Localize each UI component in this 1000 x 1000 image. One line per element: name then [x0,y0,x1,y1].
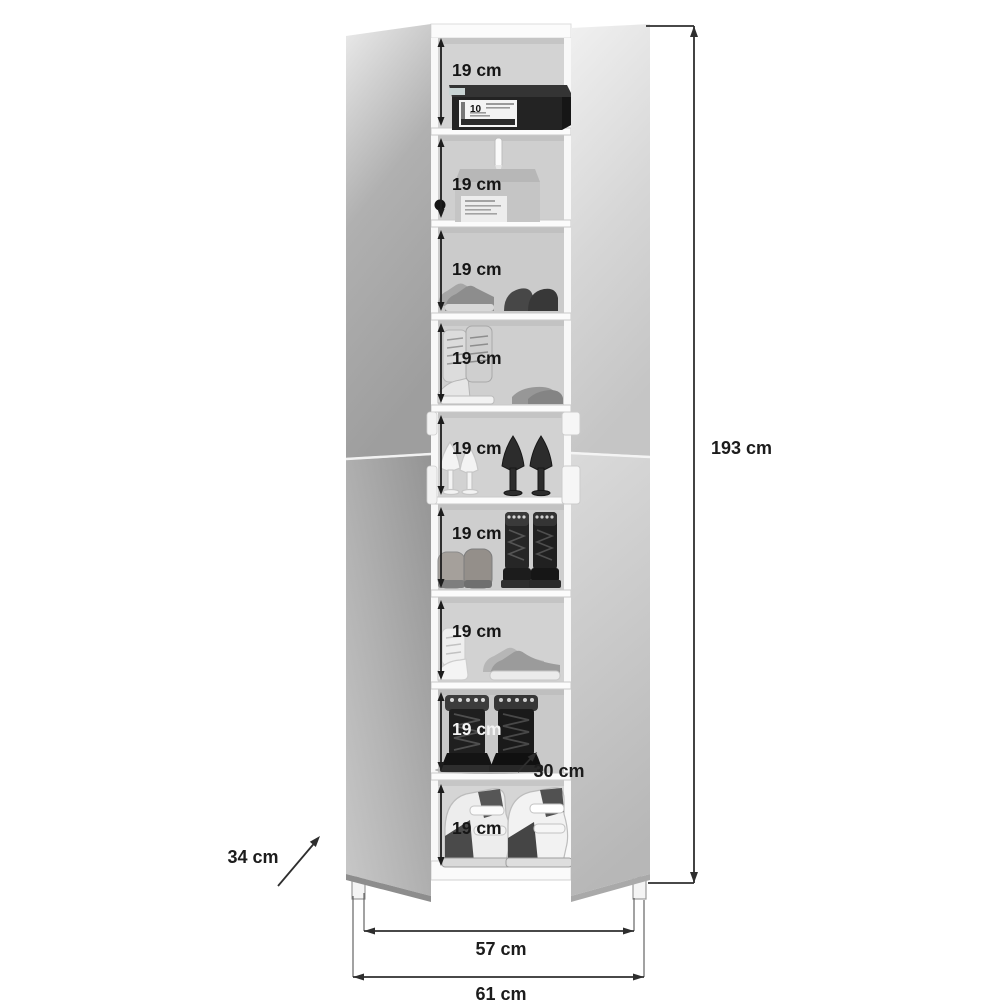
shelf3-label: 19 cm [452,259,502,279]
left-door-upper-panel [346,24,431,458]
side-depth-label: 34 cm [227,847,278,867]
left-door-handle-upper [427,412,437,435]
total-height-dimension: 193 cm [646,26,772,883]
side-depth-dimension: 34 cm [227,836,320,886]
left-door-lower-panel [346,455,431,896]
shelf4-label: 19 cm [452,348,502,368]
shelf-depth-label: 30 cm [533,761,584,781]
top-board [431,24,571,38]
right-door-handle-lower [562,466,580,504]
door-pin [435,200,446,211]
right-door-lower-panel [571,454,650,896]
product-dimension-diagram: 10 [0,0,1000,1000]
shelf9-label: 19 cm [452,818,502,838]
left-mirror-door [346,24,437,902]
outer-width-label: 61 cm [475,984,526,1000]
inner-width-dimension: 57 cm [364,893,634,959]
right-door-upper-panel [571,24,650,456]
shelf2-label: 19 cm [452,174,502,194]
shelf6-label: 19 cm [452,523,502,543]
shelf7-label: 19 cm [452,621,502,641]
shelf5-label: 19 cm [452,438,502,458]
left-frame-strip [431,38,438,868]
inner-width-label: 57 cm [475,939,526,959]
shelf1-shoe-box: 10 [449,85,573,130]
right-frame-strip [564,38,572,868]
right-door-handle-upper [562,412,580,435]
shelf8-label: 19 cm [452,719,502,739]
left-door-handle-lower [427,466,437,504]
shelf1-label: 19 cm [452,60,502,80]
shoe-cabinet-diagram: 10 [0,0,1000,1000]
total-height-label: 193 cm [711,438,772,458]
hanging-strap [495,138,502,167]
